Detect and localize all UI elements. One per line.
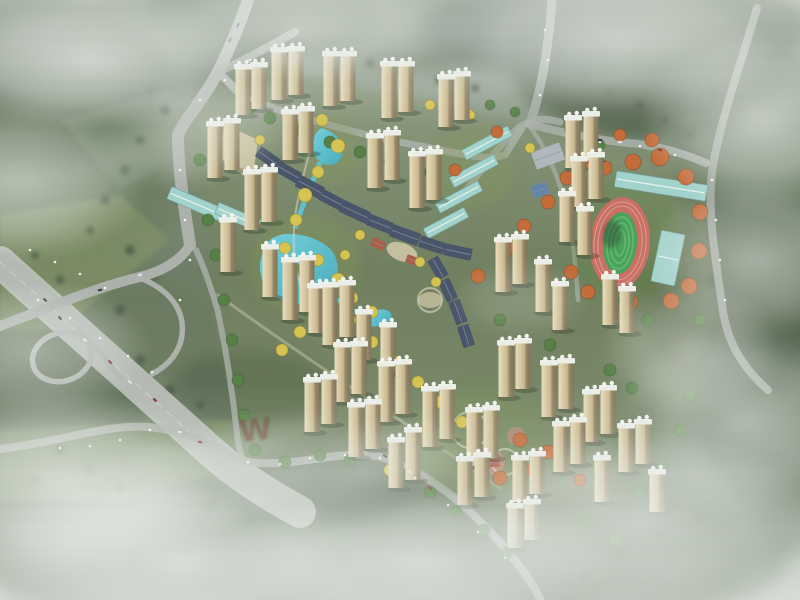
atmosphere-tint <box>0 0 800 600</box>
render-canvas: W <box>0 0 800 600</box>
masterplan-aerial-view: W <box>0 0 800 600</box>
watermark-text: W <box>237 412 274 450</box>
